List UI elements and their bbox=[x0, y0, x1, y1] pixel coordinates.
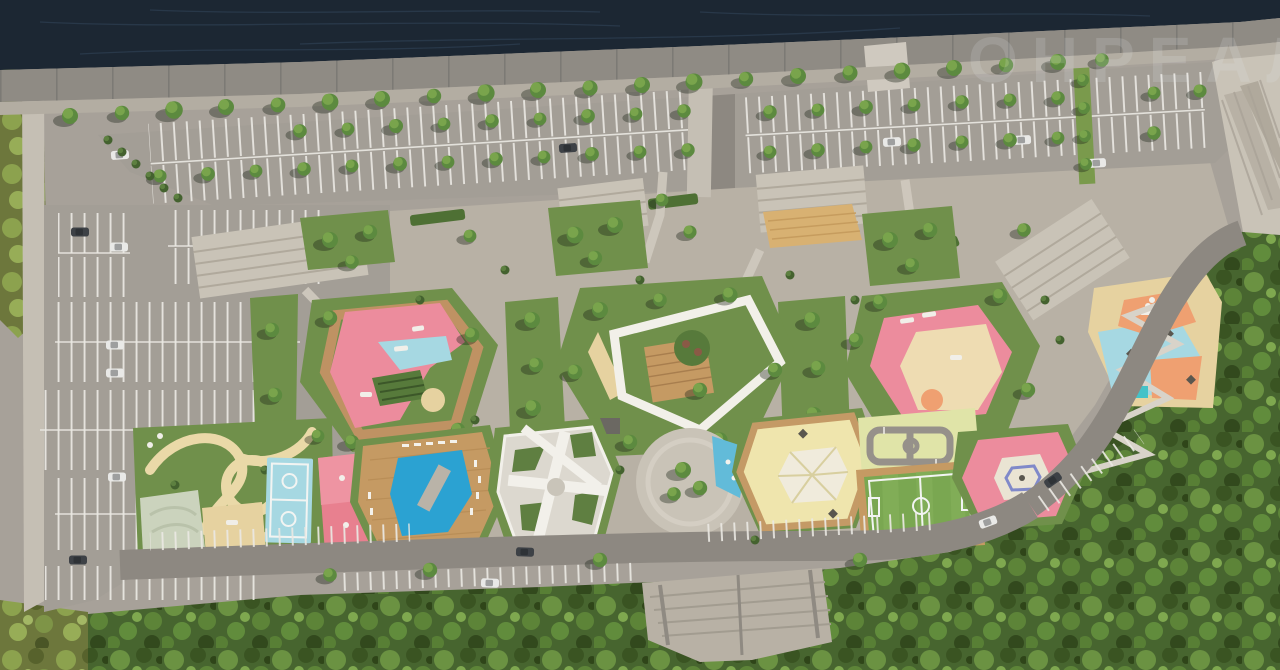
shrub-icon bbox=[851, 296, 860, 305]
parked-car bbox=[108, 473, 126, 482]
shrub-icon bbox=[1056, 336, 1065, 345]
shrub-icon bbox=[1041, 296, 1050, 305]
pavilion-center bbox=[547, 478, 565, 496]
shrub-icon bbox=[501, 266, 510, 275]
shrub-icon bbox=[171, 481, 180, 490]
shrub-icon bbox=[160, 184, 169, 193]
parked-car bbox=[883, 137, 901, 147]
shrub-icon bbox=[616, 466, 625, 475]
parked-car bbox=[110, 243, 128, 252]
street-car bbox=[516, 547, 534, 557]
pod-west-sandpit bbox=[421, 388, 445, 412]
west-sidewalk bbox=[22, 70, 46, 612]
parked-car bbox=[106, 341, 124, 350]
pod-central-garden bbox=[674, 330, 710, 366]
street-car bbox=[481, 578, 499, 588]
shrub-icon bbox=[636, 276, 645, 285]
masterplan-render: ОНРЕАЛТ bbox=[0, 0, 1280, 670]
shrub-icon bbox=[416, 296, 425, 305]
parked-car bbox=[69, 556, 87, 565]
shrub-icon bbox=[132, 160, 141, 169]
watermark: ОНРЕАЛТ bbox=[968, 24, 1280, 96]
shrub-icon bbox=[146, 172, 155, 181]
parked-car bbox=[71, 228, 89, 237]
parked-car bbox=[106, 369, 124, 378]
shrub-icon bbox=[104, 136, 113, 145]
shrub-icon bbox=[751, 536, 760, 545]
shrub-icon bbox=[118, 148, 127, 157]
shrub-icon bbox=[174, 194, 183, 203]
shrub-icon bbox=[786, 271, 795, 280]
parked-car bbox=[559, 143, 578, 153]
shrub-icon bbox=[471, 416, 480, 425]
pod-east-orange-patch bbox=[921, 389, 943, 411]
entrance-stairs bbox=[642, 568, 832, 662]
